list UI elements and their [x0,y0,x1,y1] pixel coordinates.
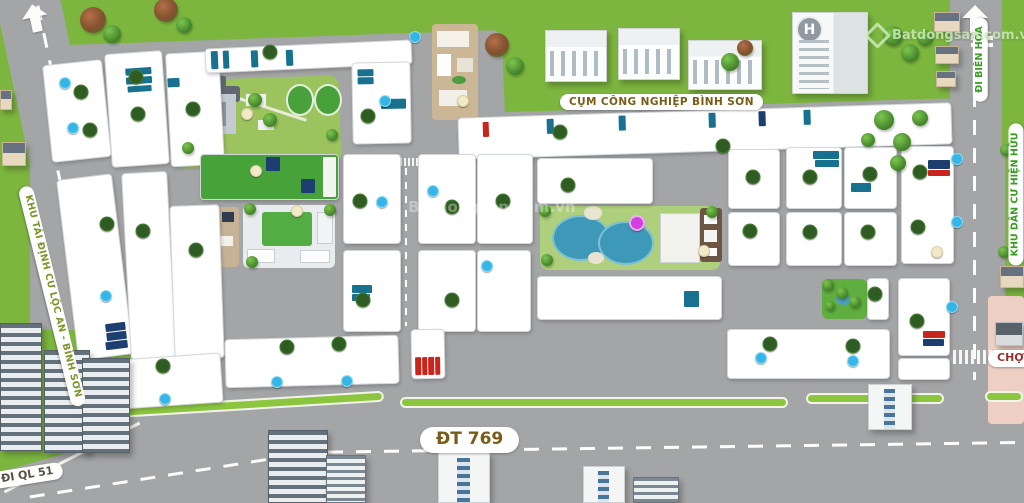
park-plaza [588,252,604,264]
sold-plot-red [415,357,421,375]
highlight-marker [629,215,645,231]
plot-block [898,358,950,380]
crosswalk-bar [412,158,414,166]
block-marker [803,225,818,240]
crosswalk-bar [977,350,980,364]
plot-block [42,59,112,163]
tree [706,206,718,218]
school-building [317,212,333,244]
utility-building [437,54,451,76]
info-marker [341,375,353,387]
label-route-dt769: ĐT 769 [420,427,519,453]
skyscraper [633,477,679,503]
info-marker [59,77,71,89]
watermark-logo [864,22,891,49]
block-marker [553,125,568,140]
tree [901,44,919,62]
amenity-marker [250,165,262,177]
skyscraper [326,455,366,503]
tree [849,296,861,308]
sold-plot-teal [618,115,625,130]
tree [874,110,894,130]
amenity-marker [241,108,253,120]
plot-block [898,278,950,356]
block-marker [129,70,144,85]
skyscraper [82,358,130,453]
lane-divider [405,168,407,326]
tree [485,33,509,57]
amenity-marker [931,246,943,258]
office-tower [868,384,912,430]
sold-plot-teal [708,113,715,128]
info-marker [100,290,112,302]
sold-plot-teal [357,69,373,76]
sold-plot-red [435,357,440,375]
block-marker [74,85,89,100]
green-garden-block [200,154,339,200]
block-marker [863,167,878,182]
utility-lawn [452,76,466,84]
block-marker [353,194,368,209]
info-marker [946,301,958,313]
block-marker [186,102,201,117]
sold-plot-navy [266,157,280,171]
block-marker [561,178,576,193]
plot-block [537,276,722,320]
amenity-marker [698,245,710,257]
arrow-stem [30,16,43,33]
block-marker [868,287,883,302]
amenity-marker [291,205,303,217]
sold-plot-navy [301,179,315,193]
block-marker [861,225,876,240]
block-marker [746,170,761,185]
house [0,90,12,110]
house [2,142,26,166]
tree [246,256,258,268]
master-plan-map: CỤM CÔNG NGHIỆP BÌNH SƠN ĐT 769 ĐI QL 51… [0,0,1024,503]
office-tower [438,452,490,503]
house [935,46,959,64]
crosswalk-bar [953,350,956,364]
tree [244,203,256,215]
community-building-detail [704,230,717,242]
info-marker [951,216,963,228]
direction-arrow-north [19,2,50,35]
tree [893,133,911,151]
sold-plot-teal [167,78,179,88]
helipad: H [796,16,823,43]
arrow-head [962,5,988,18]
block-marker [763,337,778,352]
amenity-marker [457,95,469,107]
block-marker [100,217,115,232]
skyscraper [268,430,328,503]
block-marker [361,109,376,124]
plot-block [418,250,476,332]
tree [506,57,524,75]
block-marker [332,337,347,352]
school-field [262,212,312,246]
road-median [400,397,788,408]
tree [822,279,834,291]
utility-building [222,212,234,222]
block-marker [83,123,98,138]
watermark: Batdongsan.com.vn [868,26,1024,45]
sold-plot-teal [851,183,871,192]
house [1000,266,1024,288]
clubhouse [660,213,700,263]
label-existing-residential: KHU DÂN CƯ HIỆN HỮU [1008,124,1023,266]
tree [737,40,753,56]
house [936,71,956,87]
plot-block [224,335,399,389]
crosswalk-bar [404,158,406,166]
block-marker [280,340,295,355]
office-tower [583,466,625,503]
block-marker [910,314,925,329]
crosswalk [400,158,418,166]
factory-building [618,28,680,80]
utility-building [437,31,469,47]
info-marker [427,185,439,197]
sold-plot-teal [223,50,230,68]
sold-plot-navy [923,339,944,346]
info-marker [376,196,388,208]
plot-block [901,146,954,264]
info-marker [951,153,963,165]
tree [890,155,906,171]
plot-block [728,212,780,266]
block-marker [743,224,758,239]
road-median [985,391,1023,402]
lake [598,221,654,265]
plot-block [786,212,842,266]
block-marker [263,45,278,60]
sold-plot-navy [928,160,950,169]
sold-plot-red [923,331,945,338]
crosswalk-bar [965,350,968,364]
sold-plot-teal [813,151,839,159]
block-marker [803,170,818,185]
tree [825,301,835,311]
sold-plot-red [928,170,950,176]
label-industrial-cluster: CỤM CÔNG NGHIỆP BÌNH SƠN [560,94,763,110]
sold-plot-navy [758,111,765,126]
skyscraper [0,323,42,451]
block-marker [445,293,460,308]
sold-plot-red [483,122,489,137]
sold-plot-red [422,357,427,375]
park-plaza [584,206,602,220]
helipad-tower: H [792,12,868,94]
market-building [995,322,1023,346]
info-marker [159,393,171,405]
sports-oval [314,84,342,116]
watermark-text: Batdongsan.com.vn [892,28,1024,43]
plot-block [727,329,890,379]
plot-block [343,250,401,332]
tree [182,142,194,154]
block-marker [911,220,926,235]
tree [103,25,121,43]
tree [80,7,106,33]
plot-block [169,204,224,360]
info-marker [755,352,767,364]
block-marker [356,293,371,308]
tree [324,204,336,216]
info-marker [847,355,859,367]
info-marker [379,95,391,107]
tree [861,133,875,147]
sold-plot-teal [803,110,810,125]
tree [248,93,262,107]
crosswalk-bar [959,350,962,364]
sold-plot-navy [105,340,128,351]
sold-plot-teal [127,85,151,93]
block-marker [189,243,204,258]
info-marker [481,260,493,272]
tree [176,17,192,33]
tree [326,129,338,141]
sold-plot-teal [286,50,294,66]
tree [263,113,277,127]
factory-building [545,30,607,82]
sold-plot-red [428,357,434,375]
block-marker [156,359,171,374]
info-marker [409,31,421,43]
plot-block [121,171,177,360]
sold-plot-teal [358,77,374,84]
label-market: CHỢ [988,350,1024,367]
block-marker [136,224,151,239]
sold-plot-teal [684,291,699,307]
sold-plot-teal [815,160,839,167]
utility-building [457,58,473,72]
tree [836,287,848,299]
crosswalk-bar [408,158,410,166]
sold-plot-teal [251,50,259,67]
watermark-faint: Batdongsan.com.vn [408,198,576,216]
info-marker [67,122,79,134]
plot-accent-white [323,157,336,197]
tree [541,254,553,266]
plot-block [411,329,446,380]
sold-plot-teal [211,51,219,69]
crosswalk-bar [983,350,986,364]
tree [721,53,739,71]
sports-oval [286,84,314,116]
tree [912,110,928,126]
school-building [300,250,330,263]
tree [154,0,178,22]
block-marker [913,165,928,180]
block-marker [846,339,861,354]
info-marker [271,376,283,388]
block-marker [716,139,731,154]
block-marker [131,107,146,122]
crosswalk-bar [971,350,974,364]
